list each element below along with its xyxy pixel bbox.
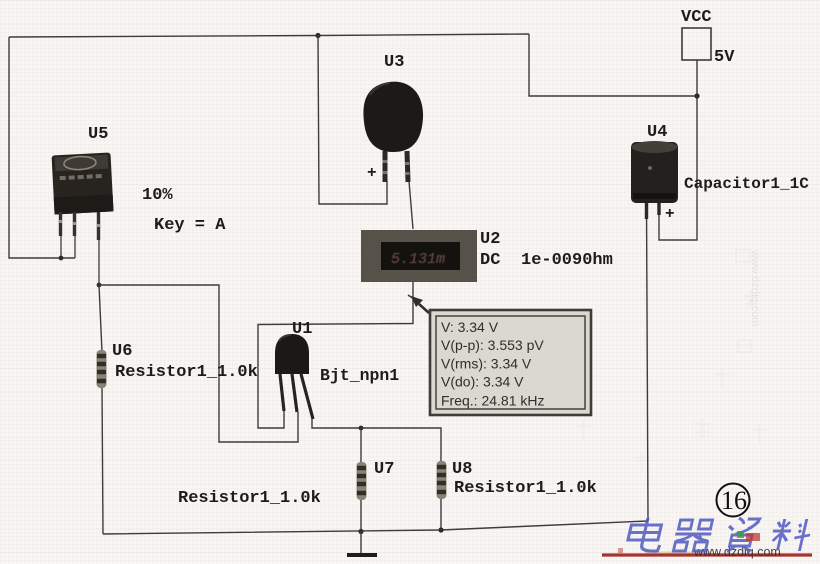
svg-text:16: 16 xyxy=(721,486,747,515)
svg-text:U5: U5 xyxy=(88,125,108,144)
svg-text:U1: U1 xyxy=(292,320,312,339)
svg-text:U7: U7 xyxy=(374,460,394,479)
svg-text:Resistor1_1.0k: Resistor1_1.0k xyxy=(178,489,321,508)
svg-text:1e-0090hm: 1e-0090hm xyxy=(521,251,613,270)
svg-text:Bjt_npn1: Bjt_npn1 xyxy=(320,366,399,385)
svg-text:www.dzdiq.com: www.dzdiq.com xyxy=(749,249,761,326)
svg-text:VCC: VCC xyxy=(681,8,712,27)
svg-text:U4: U4 xyxy=(647,123,667,142)
svg-text:10%: 10% xyxy=(142,186,173,205)
svg-text:Freq.: 24.81 kHz: Freq.: 24.81 kHz xyxy=(441,393,545,409)
svg-text:5V: 5V xyxy=(714,48,735,67)
svg-text:+: + xyxy=(367,164,377,182)
svg-text:V: 3.34 V: V: 3.34 V xyxy=(441,319,499,335)
svg-text:U6: U6 xyxy=(112,342,132,361)
svg-text:U2: U2 xyxy=(480,230,500,249)
svg-text:Resistor1_1.0k: Resistor1_1.0k xyxy=(115,363,258,382)
svg-text:U8: U8 xyxy=(452,460,472,479)
svg-text:V(rms): 3.34 V: V(rms): 3.34 V xyxy=(441,356,532,372)
svg-text:5.131m: 5.131m xyxy=(391,251,445,268)
svg-text:V(p-p): 3.553 pV: V(p-p): 3.553 pV xyxy=(441,337,544,353)
svg-text:+: + xyxy=(665,205,675,223)
svg-text:V(do): 3.34 V: V(do): 3.34 V xyxy=(441,374,524,390)
svg-text:Resistor1_1.0k: Resistor1_1.0k xyxy=(454,479,597,498)
svg-text:Capacitor1_1C: Capacitor1_1C xyxy=(684,175,809,193)
svg-text:DC: DC xyxy=(480,251,500,270)
svg-text:U3: U3 xyxy=(384,53,404,72)
svg-text:Key = A: Key = A xyxy=(154,216,226,235)
